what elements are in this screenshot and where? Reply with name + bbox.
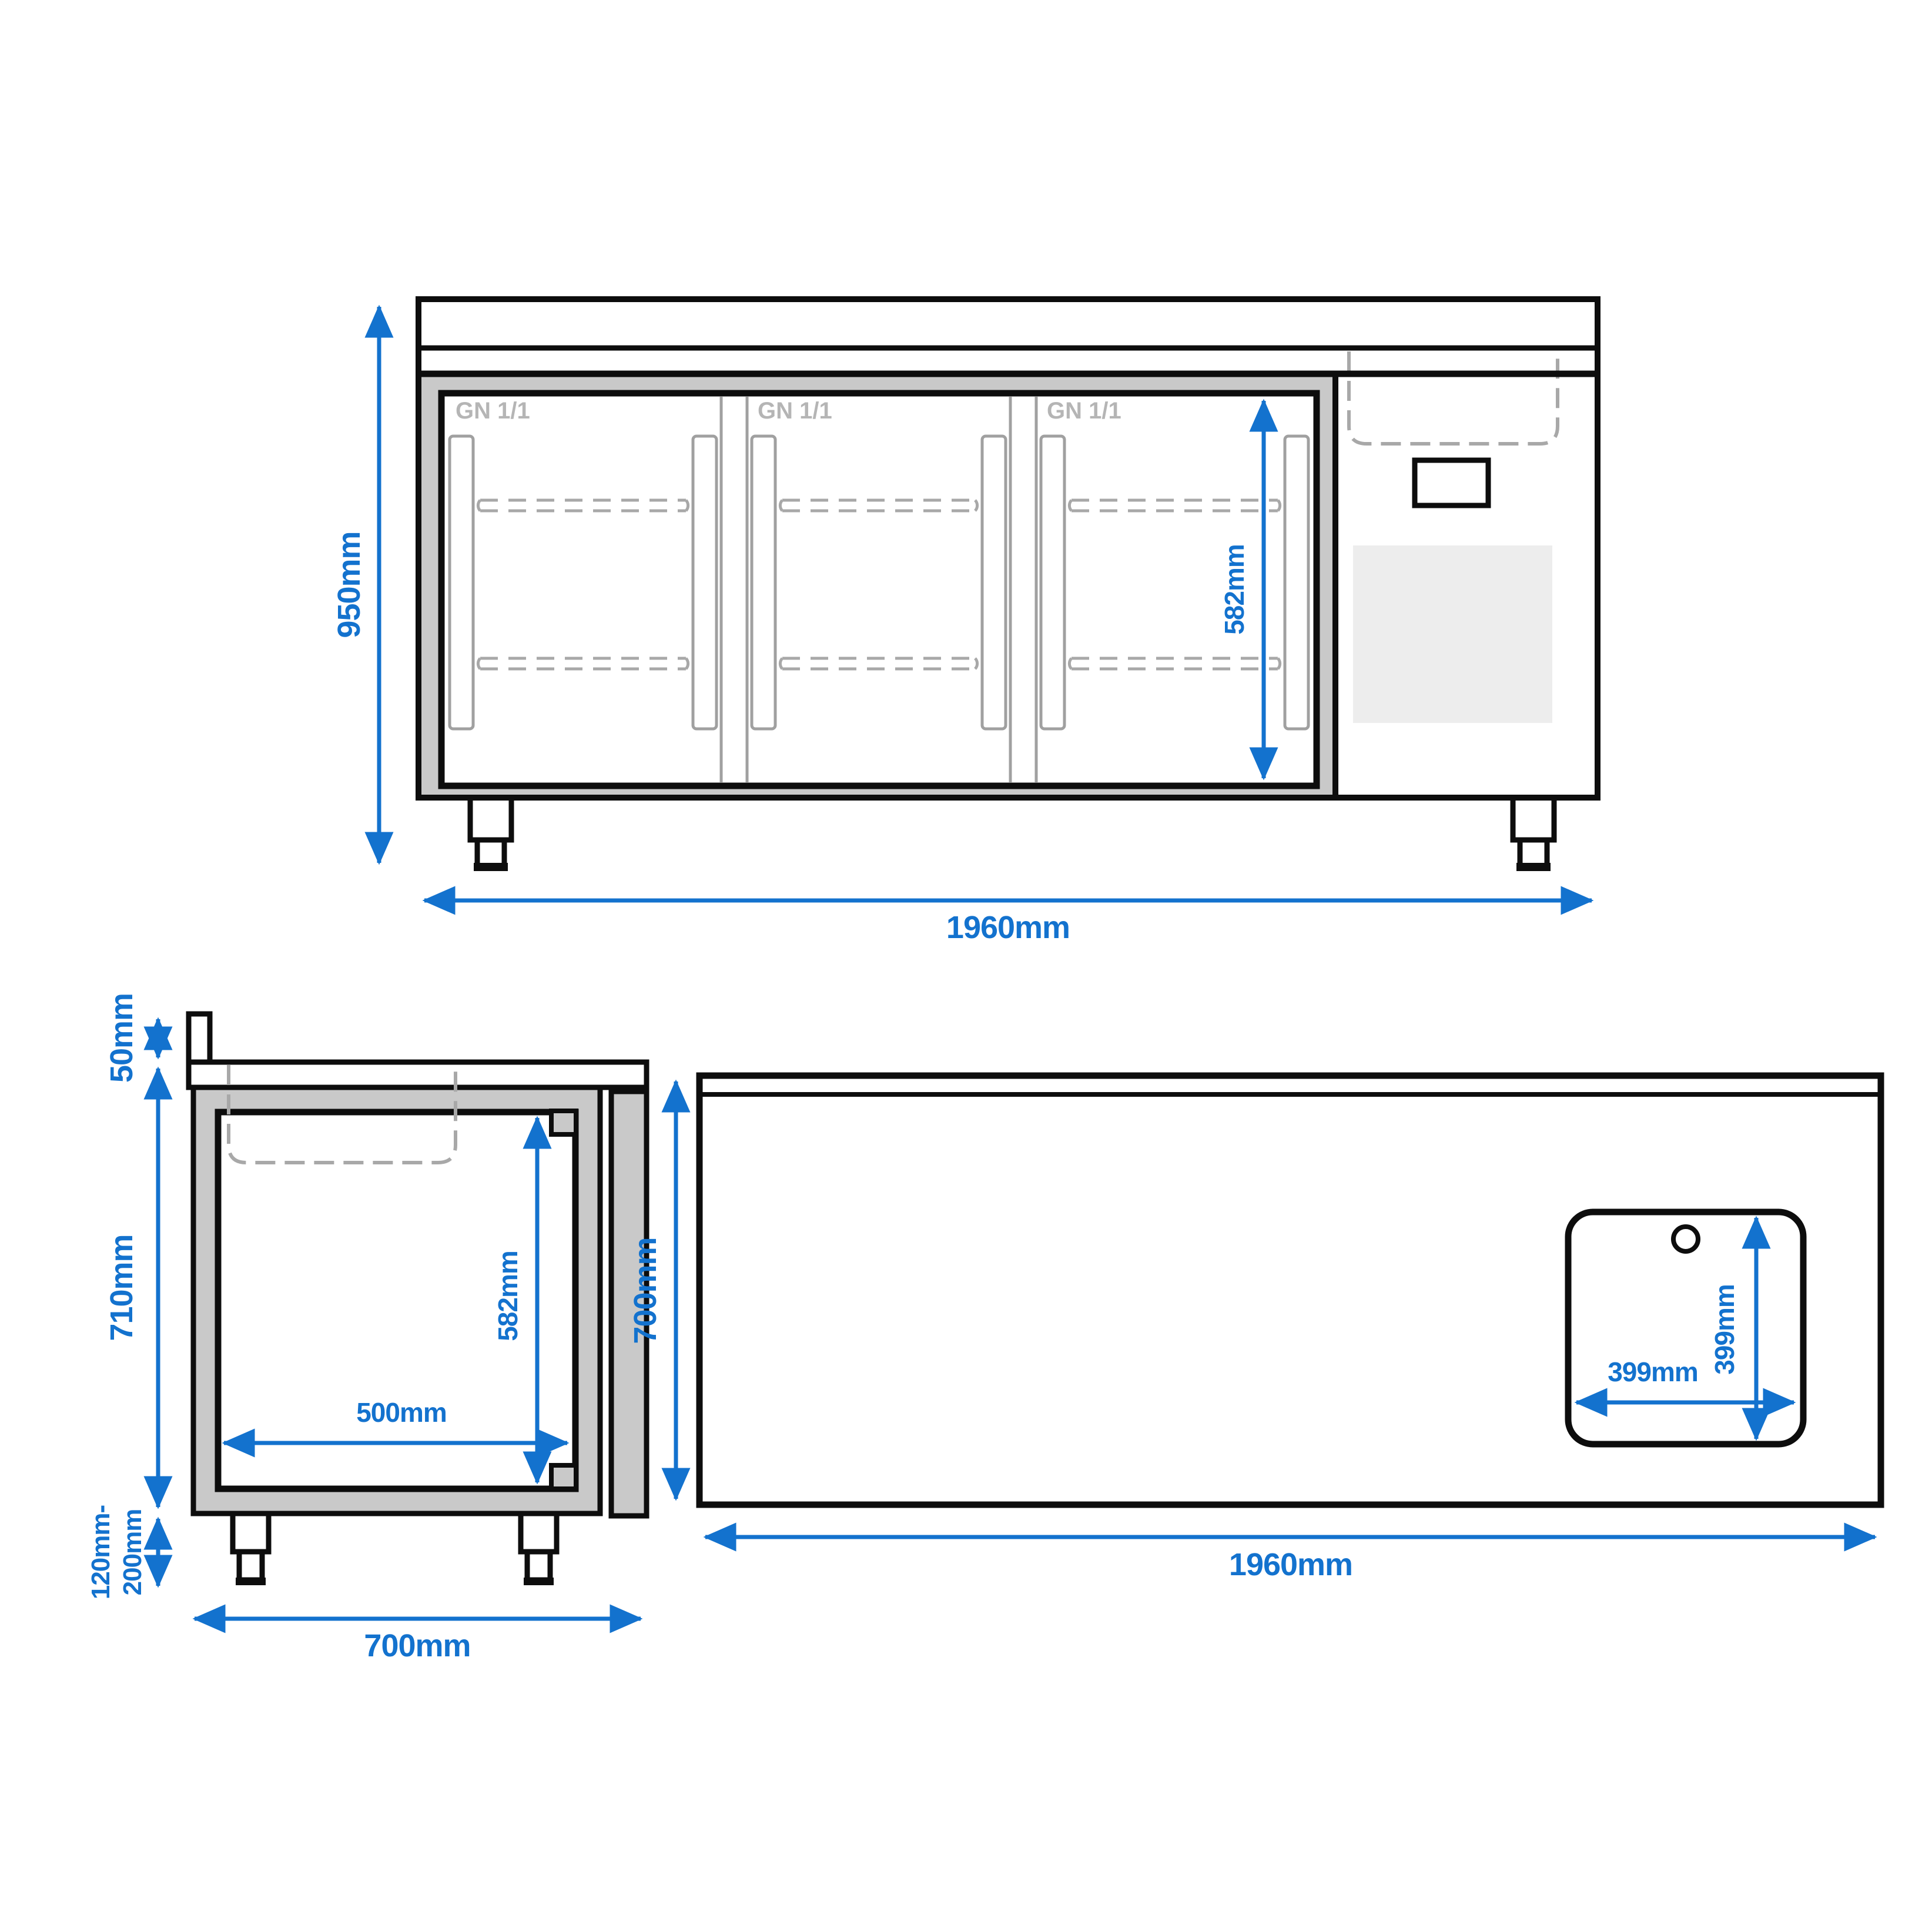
leg-foot-cap — [474, 863, 508, 871]
dim-label-sink-depth: 399mm — [1709, 1284, 1740, 1375]
dim-label-upstand: 50mm — [104, 993, 139, 1083]
leg-foot — [527, 1552, 550, 1580]
door-window — [441, 393, 1317, 786]
gn-pan-rail — [1285, 436, 1308, 729]
dim-label-depth: 700mm — [628, 1237, 663, 1344]
leg-foot — [1520, 840, 1547, 866]
dim-label-body-height: 710mm — [104, 1234, 139, 1341]
dim-label-width: 1960mm — [1229, 1547, 1352, 1582]
gn-door-label: GN 1/1 — [456, 398, 530, 424]
gn-pan-rail — [752, 436, 775, 729]
gn-door-label: GN 1/1 — [758, 398, 832, 424]
vent-panel — [1353, 545, 1552, 723]
leg-foot — [239, 1552, 262, 1580]
side-view: 582mm 500mm 50mm 710mm 120mm- 200mm 700m… — [86, 993, 647, 1663]
gn-pan-rail — [450, 436, 473, 729]
worktop-slab — [189, 1062, 647, 1087]
dim-label-interior-height: 582mm — [493, 1251, 523, 1341]
leg-foot-cap — [1516, 863, 1551, 871]
dim-label-width: 1960mm — [946, 910, 1070, 945]
leg-upper — [521, 1514, 557, 1552]
leg-upper — [1513, 798, 1554, 840]
dim-label-height: 950mm — [332, 531, 367, 638]
hinge-block-bottom — [551, 1465, 576, 1489]
top-view: 399mm 399mm 700mm 1960mm — [628, 1076, 1881, 1582]
gn-pan-rail — [982, 436, 1006, 729]
gn-door-label: GN 1/1 — [1047, 398, 1121, 424]
leg-foot-cap — [524, 1578, 554, 1585]
control-panel — [1415, 460, 1488, 505]
backsplash-upstand — [189, 1014, 210, 1067]
dim-label-leg-height-line1: 120mm- — [86, 1505, 115, 1599]
leg-foot — [477, 840, 504, 866]
refrigerated-counter-drawing: GN 1/1 GN 1/1 GN 1/1 950mm 582mm 1960mm — [0, 0, 1932, 1932]
dim-label-sink-width: 399mm — [1608, 1357, 1698, 1387]
technical-drawing-page: GN 1/1 GN 1/1 GN 1/1 950mm 582mm 1960mm — [0, 0, 1932, 1932]
sink-bowl — [1568, 1212, 1803, 1444]
leg-upper — [233, 1514, 269, 1552]
gn-pan-rail — [693, 436, 716, 729]
leg-foot-cap — [236, 1578, 266, 1585]
leg-upper — [470, 798, 511, 840]
dim-label-depth: 700mm — [364, 1628, 470, 1663]
dim-label-interior-height: 582mm — [1219, 544, 1250, 635]
gn-pan-rail — [1041, 436, 1064, 729]
dim-label-interior-depth: 500mm — [356, 1397, 447, 1428]
dim-label-leg-height-line2: 200mm — [118, 1509, 147, 1596]
front-view: GN 1/1 GN 1/1 GN 1/1 950mm 582mm 1960mm — [332, 299, 1598, 945]
hinge-block-top — [551, 1111, 576, 1134]
